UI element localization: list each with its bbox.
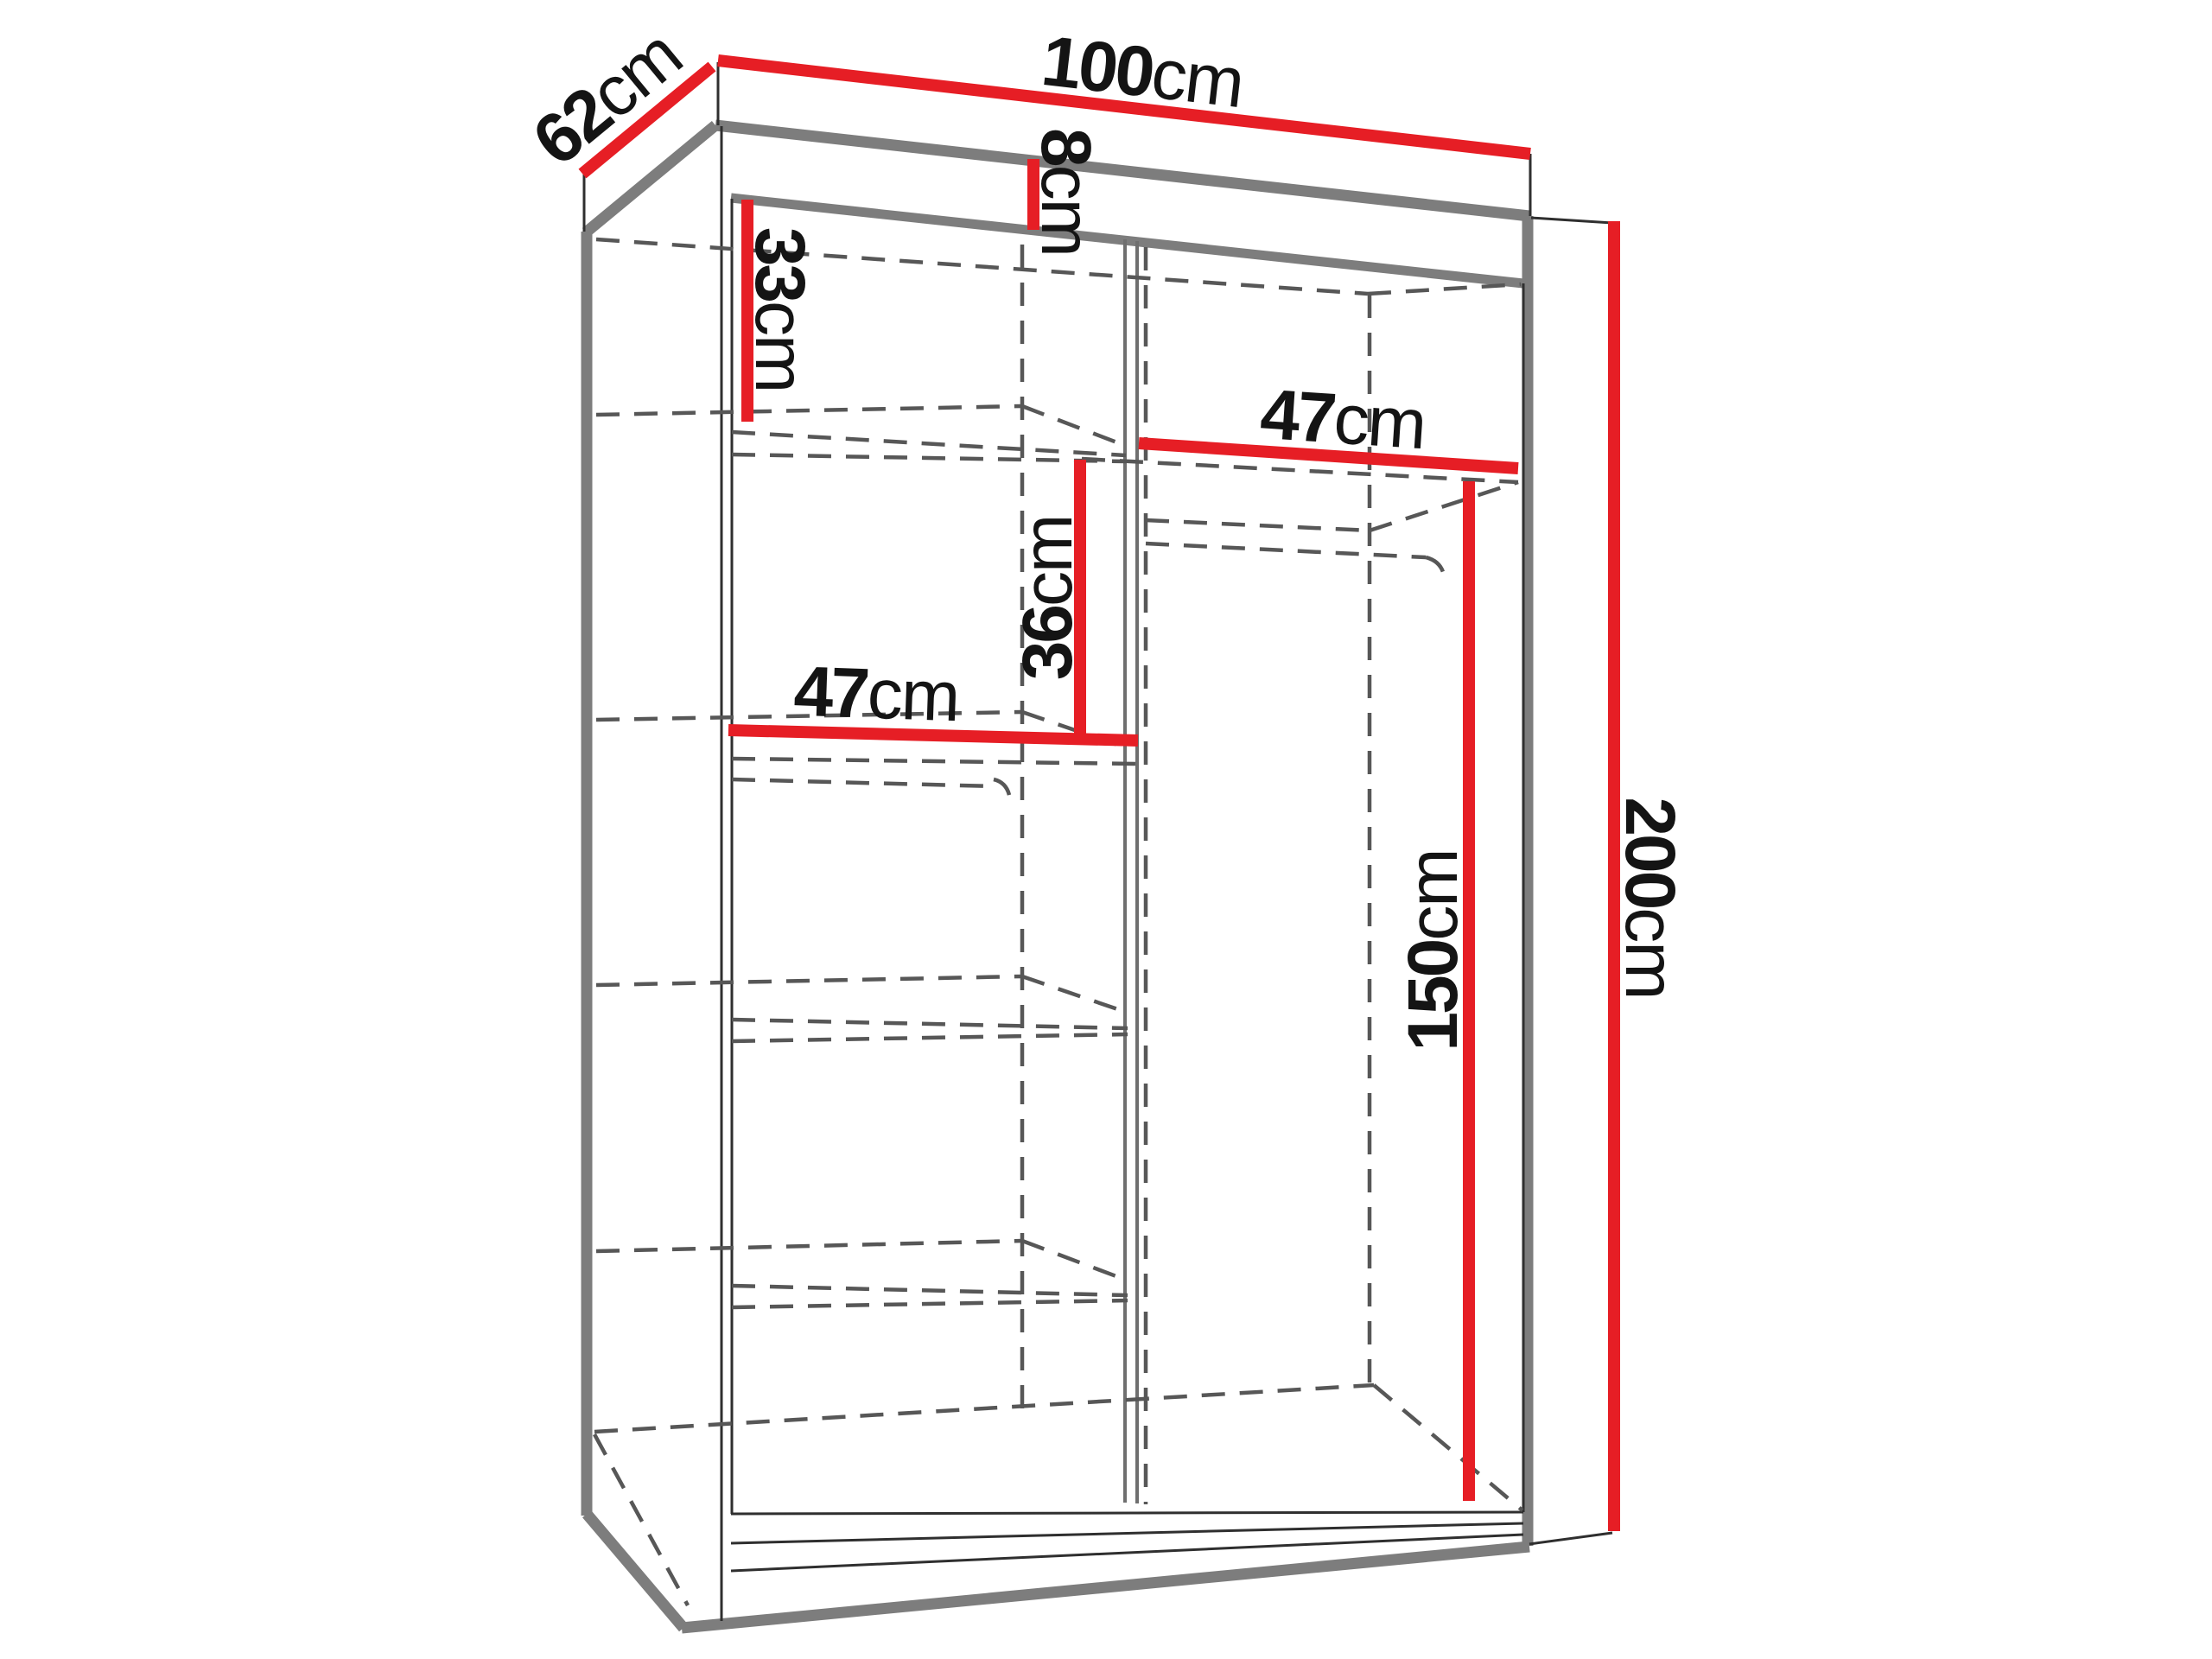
shelf-2-front-bottom <box>732 779 994 786</box>
dimension-label-upper-shelf-drop: 33cm <box>744 227 815 392</box>
shelf-1-front-bottom <box>732 454 1126 461</box>
shelf-1 <box>596 406 1126 461</box>
interior-floor-edge <box>731 1512 1523 1514</box>
shelf-2-front-top <box>732 759 1138 764</box>
shelf-3-depth-edge <box>1022 976 1128 1013</box>
shelf-1-front-top <box>732 432 1126 455</box>
shelf-4-back-edge <box>596 1241 1022 1251</box>
bottom-front-edge <box>682 1547 1529 1628</box>
shelf-4-front-bottom <box>732 1300 1128 1307</box>
right-panel-bottom-edge <box>1529 1533 1612 1544</box>
clothes-rail-front-line <box>1146 543 1426 557</box>
floor-right-depth-dashed <box>1374 1385 1522 1510</box>
clothes-rail-back-line <box>1146 520 1370 531</box>
dimension-label-hanging-height: 150cm <box>1398 849 1469 1051</box>
shelf-3-back-edge <box>596 976 1022 985</box>
ceiling-back-edge-dashed <box>596 239 1368 294</box>
shelf-4-front-top <box>732 1286 1128 1295</box>
clothes-rail-end-cap <box>1426 557 1445 580</box>
shelf-4 <box>596 1241 1128 1307</box>
floor-back-edge-dashed <box>594 1385 1374 1432</box>
shelf-2-edge-hook <box>994 779 1010 800</box>
right-panel-top-edge <box>1531 218 1612 223</box>
dimension-label-left-shelf-width: 47cm <box>792 657 959 734</box>
carcass-outline <box>584 62 1612 1628</box>
shelf-3-front-top <box>732 1020 1128 1028</box>
wardrobe-line-drawing <box>0 0 2212 1659</box>
dimension-label-total-height: 200cm <box>1614 797 1685 998</box>
shelf-3-front-bottom <box>732 1034 1128 1041</box>
dimension-label-top-section: 8cm <box>1030 128 1101 256</box>
center-divider <box>1125 239 1137 1503</box>
shelf-1-back-edge <box>596 406 1022 415</box>
dimension-label-shelf-offset: 36cm <box>1013 516 1084 681</box>
shelf-4-depth-edge <box>1022 1241 1128 1281</box>
wardrobe-dimension-diagram: 62cm 100cm 8cm 33cm 47cm 36cm 47cm 150cm… <box>0 0 2212 1659</box>
interior-ceiling-edge <box>731 198 1523 283</box>
ceiling-right-depth-dashed <box>1368 284 1521 294</box>
right-shelf-depth-edge <box>1370 482 1518 531</box>
dimension-label-right-shelf-width: 47cm <box>1258 379 1427 461</box>
shelf-3 <box>596 976 1128 1041</box>
shelf-1-depth-edge <box>1022 406 1126 446</box>
